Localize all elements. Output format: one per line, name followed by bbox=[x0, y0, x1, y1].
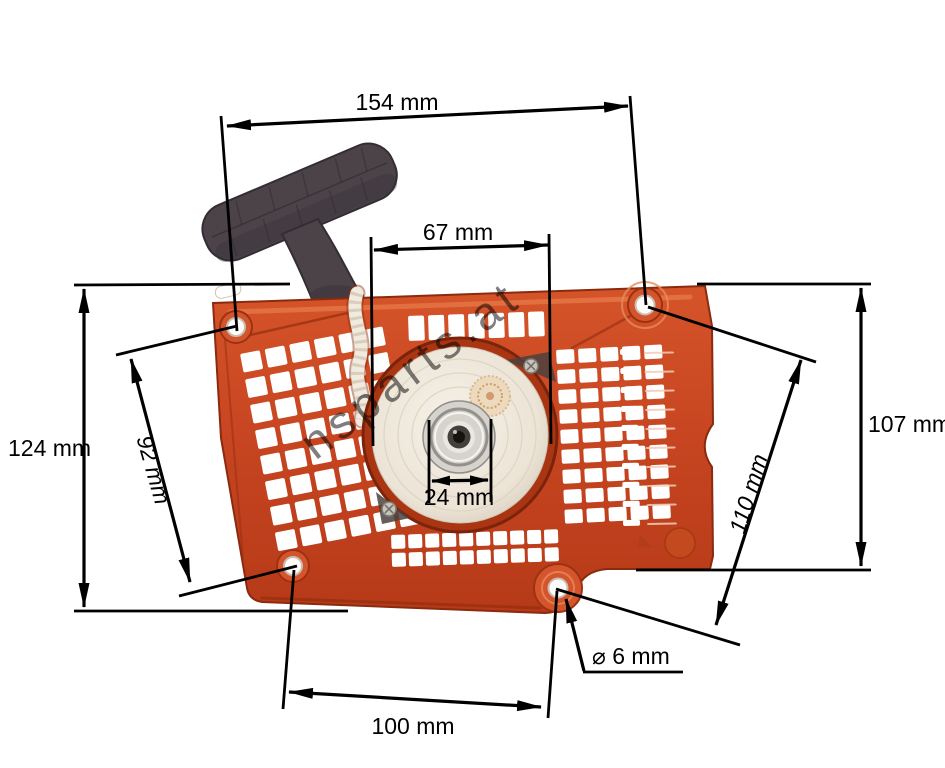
vent-cell bbox=[623, 501, 640, 507]
vent-cell bbox=[608, 507, 627, 522]
vent-cell bbox=[557, 369, 576, 384]
vent-cell bbox=[426, 551, 440, 565]
vent-cell bbox=[324, 519, 347, 541]
vent-cell bbox=[459, 532, 473, 546]
dim-label-overall-width: 154 mm bbox=[355, 89, 438, 115]
vent-cell bbox=[270, 371, 293, 393]
housing-corner-dot bbox=[665, 528, 695, 558]
vent-cell bbox=[314, 468, 337, 490]
vent-cell bbox=[319, 494, 342, 516]
vent-cell bbox=[622, 482, 639, 488]
vent-cell bbox=[602, 387, 621, 402]
vent-cell bbox=[621, 406, 638, 412]
vent-cell bbox=[622, 444, 639, 450]
vent-cell bbox=[564, 509, 583, 524]
vent-cell bbox=[528, 548, 542, 562]
vent-cell bbox=[563, 489, 582, 504]
dim-label-diagonal-hole-spacing: 110 mm bbox=[724, 451, 773, 536]
pulley-screw-bottom bbox=[382, 502, 396, 516]
vent-cell bbox=[343, 489, 366, 511]
vent-cell bbox=[314, 336, 337, 358]
vent-cell bbox=[600, 347, 619, 362]
vent-cell bbox=[493, 531, 507, 545]
vent-cell bbox=[392, 553, 406, 567]
vent-cell bbox=[630, 505, 649, 520]
vent-cell bbox=[559, 409, 578, 424]
dim-label-left-hole-spacing: 92 mm bbox=[132, 432, 176, 507]
vent-cell bbox=[556, 349, 575, 364]
vent-cell bbox=[348, 515, 371, 537]
vent-cell bbox=[578, 348, 597, 363]
vent-cell bbox=[579, 368, 598, 383]
vent-cell bbox=[289, 341, 312, 363]
vent-cell bbox=[649, 444, 668, 459]
vent-cell bbox=[476, 532, 490, 546]
vent-cell bbox=[623, 520, 640, 526]
vent-cell bbox=[603, 407, 622, 422]
vent-cell bbox=[562, 469, 581, 484]
dim-label-pulley-housing-width: 67 mm bbox=[423, 219, 493, 245]
vent-cell bbox=[443, 551, 457, 565]
vent-cell bbox=[560, 429, 579, 444]
vent-cell bbox=[270, 503, 293, 525]
vent-cell bbox=[582, 428, 601, 443]
vent-cell bbox=[652, 504, 671, 519]
starter-handle bbox=[194, 136, 404, 307]
vent-cell bbox=[647, 404, 666, 419]
vent-cell bbox=[294, 499, 317, 521]
vent-cell bbox=[338, 463, 361, 485]
vent-cell bbox=[274, 396, 297, 418]
vent-cell bbox=[528, 311, 545, 337]
vent-cell bbox=[494, 549, 508, 563]
vent-cell bbox=[265, 345, 288, 367]
vent-cell bbox=[558, 389, 577, 404]
vent-cell bbox=[606, 467, 625, 482]
vent-cell bbox=[289, 473, 312, 495]
vent-cell bbox=[275, 529, 298, 551]
vent-cell bbox=[425, 533, 439, 547]
vent-cell bbox=[620, 349, 637, 355]
vent-cell bbox=[265, 478, 288, 500]
vent-cell bbox=[510, 530, 524, 544]
vent-cell bbox=[583, 448, 602, 463]
vent-cell bbox=[409, 552, 423, 566]
vent-cell bbox=[604, 427, 623, 442]
vent-cell bbox=[580, 388, 599, 403]
dim-label-hub-diameter: 24 mm bbox=[424, 484, 494, 510]
vent-cell bbox=[545, 547, 559, 561]
vent-cell bbox=[544, 529, 558, 543]
vent-cell bbox=[622, 463, 639, 469]
vent-cell bbox=[408, 534, 422, 548]
vent-cell bbox=[561, 449, 580, 464]
vent-cell bbox=[245, 376, 268, 398]
vent-cell bbox=[255, 427, 278, 449]
vent-cell bbox=[648, 424, 667, 439]
vent-cell bbox=[294, 366, 317, 388]
vent-cell bbox=[391, 535, 405, 549]
vent-cell bbox=[250, 401, 273, 423]
vent-cell bbox=[621, 425, 638, 431]
vent-cell bbox=[477, 550, 491, 564]
dim-label-right-height: 107 mm bbox=[868, 411, 945, 437]
mount-hole-bottom-mid bbox=[534, 564, 582, 612]
vent-cell bbox=[319, 361, 342, 383]
vent-cell bbox=[284, 448, 307, 470]
vent-cell bbox=[442, 533, 456, 547]
vent-cell bbox=[260, 452, 283, 474]
vent-cell bbox=[605, 447, 624, 462]
product-image: nsparts.at 154 mm 67 mm 124 mm 92 mm 107… bbox=[0, 0, 945, 768]
vent-cell bbox=[620, 368, 637, 374]
vent-cell bbox=[586, 508, 605, 523]
vent-cell bbox=[240, 350, 263, 372]
pulley-screw-top bbox=[524, 359, 538, 373]
vent-cell bbox=[584, 468, 603, 483]
vent-cell bbox=[460, 550, 474, 564]
dim-label-hole-diameter: ⌀ 6 mm bbox=[592, 643, 670, 669]
pulley-hub bbox=[423, 401, 495, 473]
vent-cell bbox=[621, 387, 638, 393]
vent-cell bbox=[585, 488, 604, 503]
vent-cell bbox=[511, 548, 525, 562]
vent-cell bbox=[581, 408, 600, 423]
dim-label-overall-height: 124 mm bbox=[8, 435, 91, 461]
vent-cell bbox=[607, 487, 626, 502]
dim-label-bottom-hole-spacing: 100 mm bbox=[371, 713, 454, 739]
vent-cell bbox=[527, 530, 541, 544]
vent-cell bbox=[601, 367, 620, 382]
vent-cell bbox=[299, 524, 322, 546]
recoil-starter-diagram: nsparts.at 154 mm 67 mm 124 mm 92 mm 107… bbox=[0, 0, 945, 768]
